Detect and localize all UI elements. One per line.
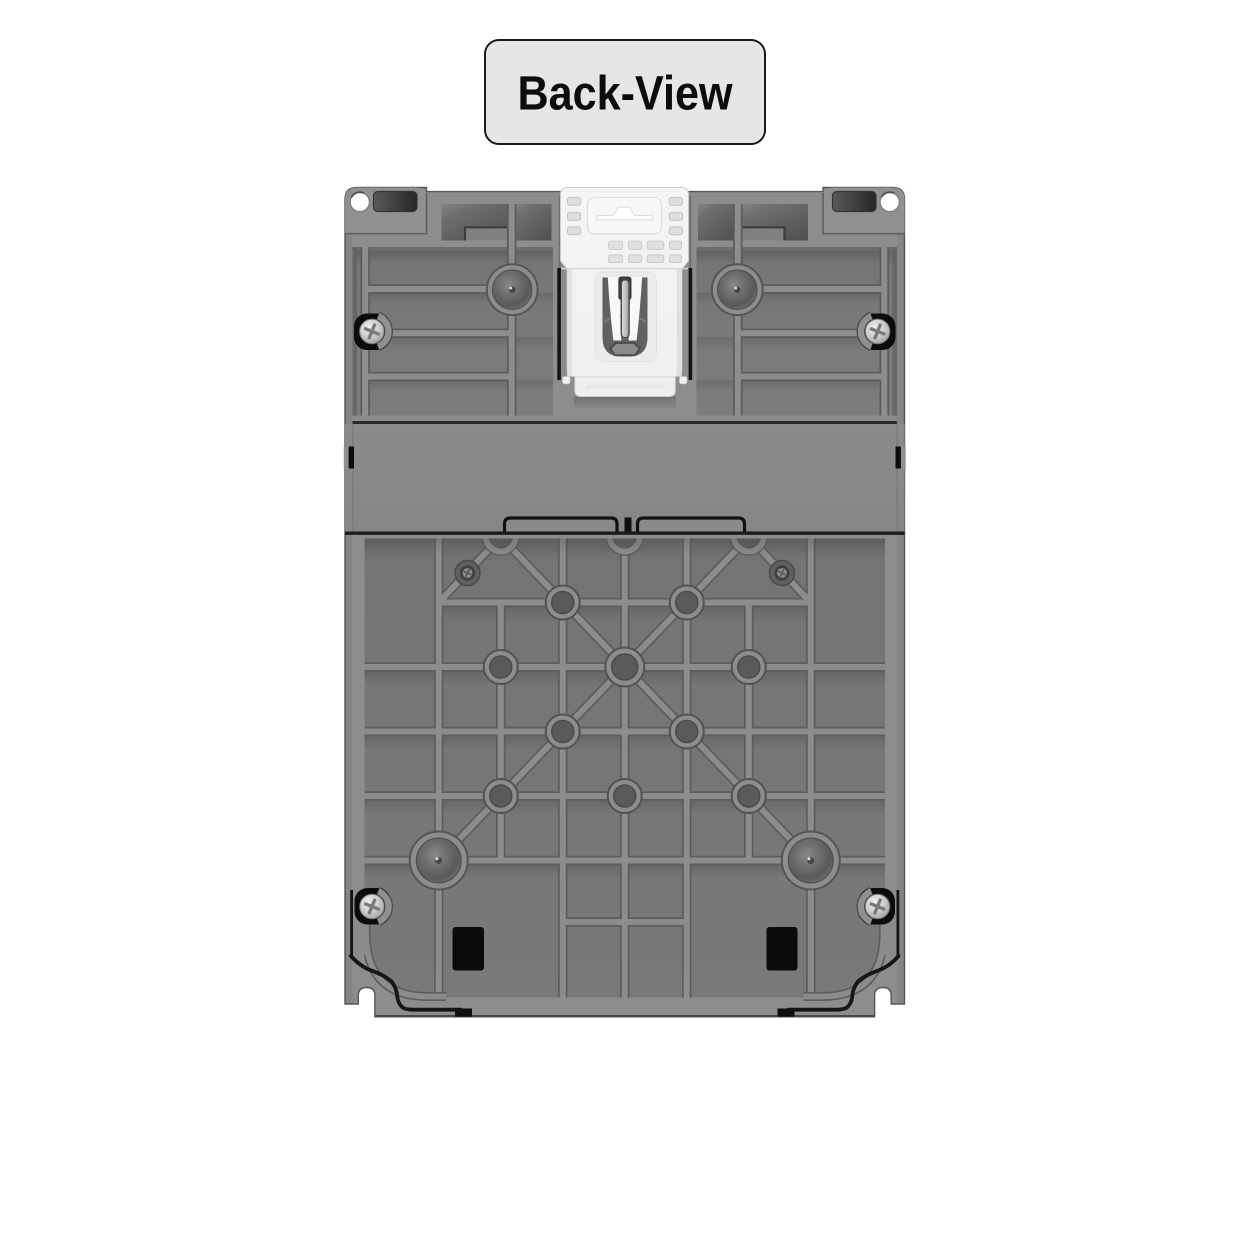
svg-text:Back-View: Back-View [518, 68, 734, 121]
